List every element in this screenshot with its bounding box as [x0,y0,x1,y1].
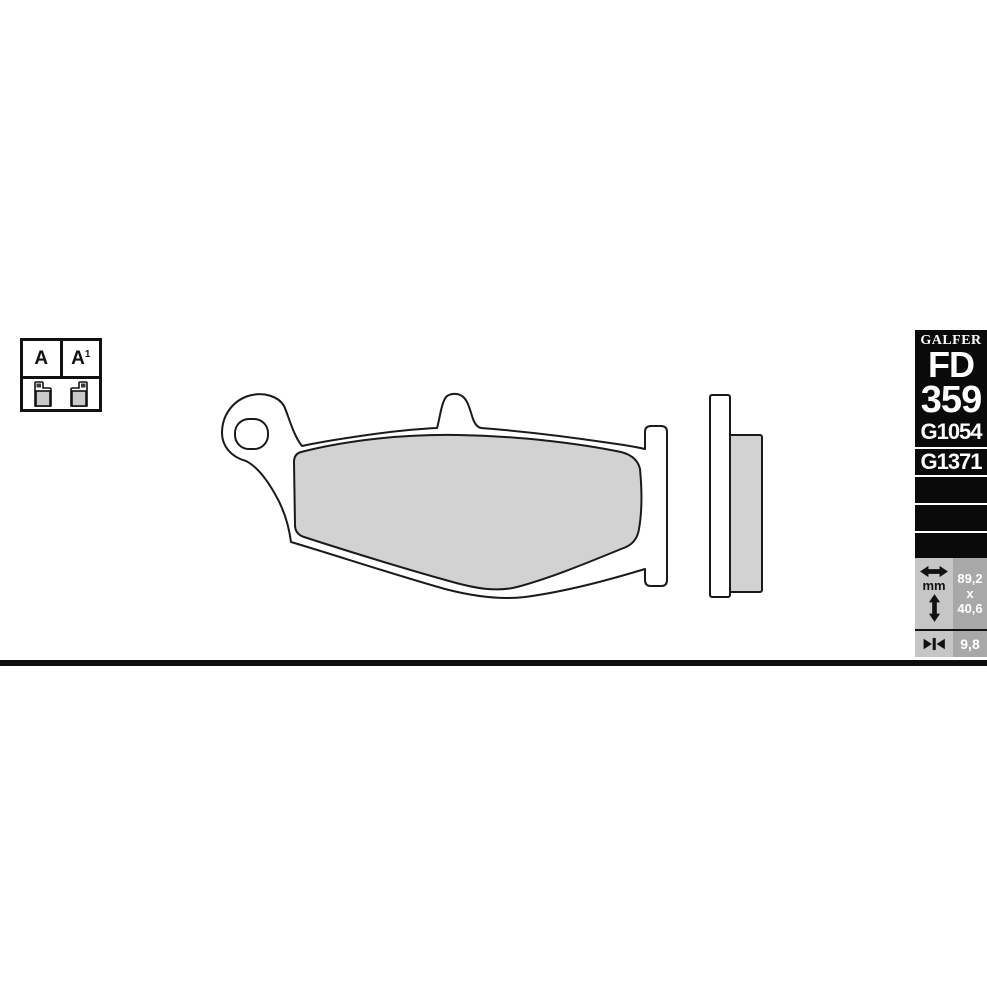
side-view-friction [726,435,762,592]
empty-row [915,505,987,531]
dimensions-values-cell: 89,2 x 40,6 [953,558,987,629]
pad-width-value: 89,2 [957,571,982,586]
compound-code-2-row: G1371 [915,449,987,475]
fitment-legend-labels: A A1 [23,341,99,379]
empty-row [915,477,987,503]
fitment-code-a1-label: A [71,348,85,370]
thickness-icon-cell [915,631,953,657]
unit-label: mm [922,579,945,593]
side-view-plate [710,395,730,597]
height-arrow-icon [928,594,941,622]
thickness-row: 9,8 [915,631,987,657]
dimensions-row: mm 89,2 x 40,6 [915,558,987,629]
brake-pad-drawing [0,0,987,987]
fitment-code-a1-sup: 1 [85,349,91,360]
fitment-code-a: A [23,341,63,376]
model-prefix: FD [928,349,974,381]
fitment-code-a-label: A [34,348,48,370]
dimensions-icons-cell: mm [915,558,953,629]
fitment-code-a1: A1 [63,341,100,376]
width-arrow-icon [920,565,948,578]
product-image: A A1 GALFER FD 35 [0,0,987,987]
model-number: 359 [921,381,981,419]
fitment-legend-icons [23,379,99,409]
dimension-separator: x [966,586,973,601]
baseline-rule [0,660,987,666]
pad-thickness-value: 9,8 [953,631,987,657]
product-info-panel: GALFER FD 359 G1054 G1371 mm [915,330,987,657]
compound-code-2: G1371 [920,449,981,475]
thickness-icon [921,636,947,652]
pad-icon-right [69,380,89,408]
pad-icon-left [33,380,53,408]
product-header: GALFER FD 359 G1054 [915,330,987,447]
mounting-hole [235,419,268,449]
fitment-legend-box: A A1 [20,338,102,412]
empty-row [915,533,987,558]
pad-height-value: 40,6 [957,601,982,616]
compound-code-1: G1054 [920,419,981,445]
